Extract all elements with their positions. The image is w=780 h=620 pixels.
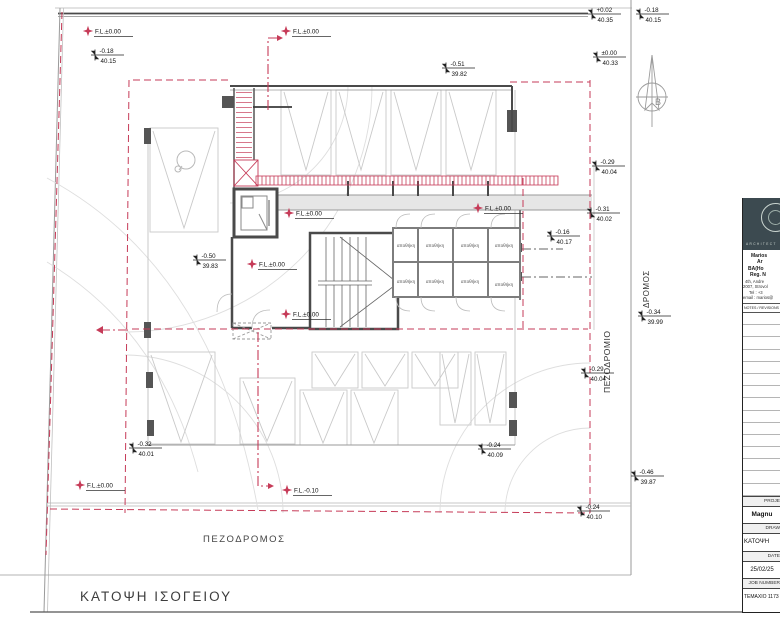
revision-row xyxy=(743,337,780,349)
pedestrian-street-label: ΠΕΖΟΔΡΟΜΟΣ xyxy=(203,534,285,545)
firm-logo: ARCHITECT xyxy=(743,198,780,250)
red-direction-arrows xyxy=(96,35,283,489)
storage-room-label: αποθήκη xyxy=(397,242,416,248)
level-altitude: 40.35 xyxy=(598,17,614,24)
floor-level-marker: F.L.±0.00 xyxy=(75,480,125,491)
stairwell xyxy=(310,233,398,329)
field-value: 25/02/25 xyxy=(743,562,780,579)
building-walls xyxy=(230,86,592,210)
revision-row xyxy=(743,374,780,386)
level-value: -0.18 xyxy=(645,7,660,14)
level-value: -0.29 xyxy=(601,159,616,166)
revision-row xyxy=(743,362,780,374)
level-altitude: 39.82 xyxy=(452,71,468,78)
revision-rows xyxy=(743,313,780,496)
level-value: -0.32 xyxy=(138,441,153,448)
field-label: DATE xyxy=(743,551,780,562)
level-altitude: 40.15 xyxy=(101,58,117,65)
drawing-sheet: B ΠΕΖΟΔΡΟΜΙΟ ΔΡΟΜΟΣ ΠΕΖΟΔΡΟΜΟΣ ΚΑΤΟΨΗ ΙΣ… xyxy=(0,0,780,620)
level-altitude: 40.10 xyxy=(587,514,603,521)
level-value: -0.34 xyxy=(647,309,662,316)
level-altitude: 40.04 xyxy=(602,169,618,176)
level-altitude: 40.09 xyxy=(488,452,504,459)
floor-level-marker: F.L.±0.00 xyxy=(247,259,297,270)
floor-level-marker: F.L.±0.00 xyxy=(83,26,133,37)
firm-info-line: email : marios@ xyxy=(743,295,780,301)
level-value: +0.02 xyxy=(597,7,613,14)
level-value: -0.16 xyxy=(556,229,571,236)
level-value: -0.24 xyxy=(586,504,601,511)
floor-level-label: F.L.-0.10 xyxy=(294,488,319,495)
level-marker: -0.3240.01 xyxy=(129,441,162,458)
notes-revisions-header: NOTES / REVISIONS xyxy=(743,304,780,313)
level-altitude: 40.15 xyxy=(646,17,662,24)
level-altitude: 39.83 xyxy=(203,263,219,270)
floor-level-marker: F.L.-0.10 xyxy=(282,485,332,496)
field-value: ΤΕΜΑΧΙΟ 1173 xyxy=(743,589,780,606)
level-altitude: 40.33 xyxy=(603,60,619,67)
level-altitude: 40.17 xyxy=(557,239,573,246)
lobby xyxy=(217,237,310,339)
revision-row xyxy=(743,484,780,496)
revision-row xyxy=(743,350,780,362)
level-marker: +0.0240.35 xyxy=(588,7,621,24)
level-marker: -0.1640.17 xyxy=(547,229,580,246)
revision-row xyxy=(743,423,780,435)
field-value: ΚΑΤΟΨΗ xyxy=(743,534,780,551)
floor-level-label: F.L.±0.00 xyxy=(293,29,319,36)
revision-row xyxy=(743,471,780,483)
elevator xyxy=(234,189,277,237)
sidewalk-label: ΠΕΖΟΔΡΟΜΙΟ xyxy=(602,331,612,393)
storage-room-label: αποθήκη xyxy=(495,242,514,248)
floor-level-label: F.L.±0.00 xyxy=(485,206,511,213)
level-altitude: 40.04 xyxy=(591,376,607,383)
revision-row xyxy=(743,435,780,447)
storage-room-label: αποθήκη xyxy=(461,278,480,284)
level-value: -0.46 xyxy=(640,469,655,476)
revision-row xyxy=(743,386,780,398)
storage-rooms xyxy=(393,210,592,311)
firm-logo-emblem xyxy=(761,203,780,232)
floor-level-label: F.L.±0.00 xyxy=(293,312,319,319)
revision-row xyxy=(743,447,780,459)
floor-level-label: F.L.±0.00 xyxy=(95,29,121,36)
level-value: -0.29 xyxy=(590,366,605,373)
storage-room-label: αποθήκη xyxy=(426,278,445,284)
north-arrow: B xyxy=(636,55,668,127)
floor-level-marker: F.L.±0.00 xyxy=(281,26,331,37)
floor-level-label: F.L.±0.00 xyxy=(296,211,322,218)
level-altitude: 39.99 xyxy=(648,319,664,326)
level-marker: -0.2940.04 xyxy=(592,159,625,176)
level-value: -0.24 xyxy=(487,442,502,449)
field-value: Magnu xyxy=(743,507,780,524)
floor-level-label: F.L.±0.00 xyxy=(259,262,285,269)
level-value: -0.51 xyxy=(451,61,466,68)
field-label: PROJE xyxy=(743,496,780,507)
storage-room-label: αποθήκη xyxy=(397,278,416,284)
firm-info: MariosArBA(HoReg. N4th, Andre2007, Strov… xyxy=(743,250,780,304)
revision-row xyxy=(743,325,780,337)
title-block-fields: PROJEMagnuDRAWΚΑΤΟΨΗDATE25/02/25JOB NUMB… xyxy=(743,496,780,606)
storage-room-label: αποθήκη xyxy=(495,281,514,287)
title-block: ARCHITECT MariosArBA(HoReg. N4th, Andre2… xyxy=(742,198,780,613)
level-value: ±0.00 xyxy=(602,50,618,57)
level-marker: -0.5039.83 xyxy=(193,253,226,270)
storage-room-label: αποθήκη xyxy=(426,242,445,248)
floor-plan-canvas: B ΠΕΖΟΔΡΟΜΙΟ ΔΡΟΜΟΣ ΠΕΖΟΔΡΟΜΟΣ ΚΑΤΟΨΗ ΙΣ… xyxy=(0,0,780,620)
firm-logo-caption: ARCHITECT xyxy=(746,242,777,246)
north-label: B xyxy=(655,97,661,107)
level-altitude: 39.87 xyxy=(641,479,657,486)
revision-row xyxy=(743,398,780,410)
field-label: JOB NUMBER xyxy=(743,578,780,589)
level-value: -0.31 xyxy=(596,206,611,213)
drawing-title: ΚΑΤΟΨΗ ΙΣΟΓΕΙΟΥ xyxy=(80,589,232,604)
level-value: -0.18 xyxy=(100,48,115,55)
storage-room-label: αποθήκη xyxy=(461,242,480,248)
road-label: ΔΡΟΜΟΣ xyxy=(642,270,651,308)
level-value: -0.50 xyxy=(202,253,217,260)
revision-row xyxy=(743,459,780,471)
level-marker: -0.3439.99 xyxy=(638,309,671,326)
level-altitude: 40.01 xyxy=(139,451,155,458)
level-marker: -0.1840.15 xyxy=(91,48,124,65)
field-label: DRAW xyxy=(743,523,780,534)
level-marker: ±0.0040.33 xyxy=(593,50,626,67)
level-marker: -0.1840.15 xyxy=(636,7,669,24)
level-marker: -0.5139.82 xyxy=(442,61,475,78)
floor-level-label: F.L.±0.00 xyxy=(87,483,113,490)
revision-row xyxy=(743,313,780,325)
level-altitude: 40.02 xyxy=(597,216,613,223)
level-marker: -0.2440.10 xyxy=(577,504,610,521)
revision-row xyxy=(743,411,780,423)
tree-symbol xyxy=(175,151,195,172)
level-marker: -0.4639.87 xyxy=(631,469,664,486)
